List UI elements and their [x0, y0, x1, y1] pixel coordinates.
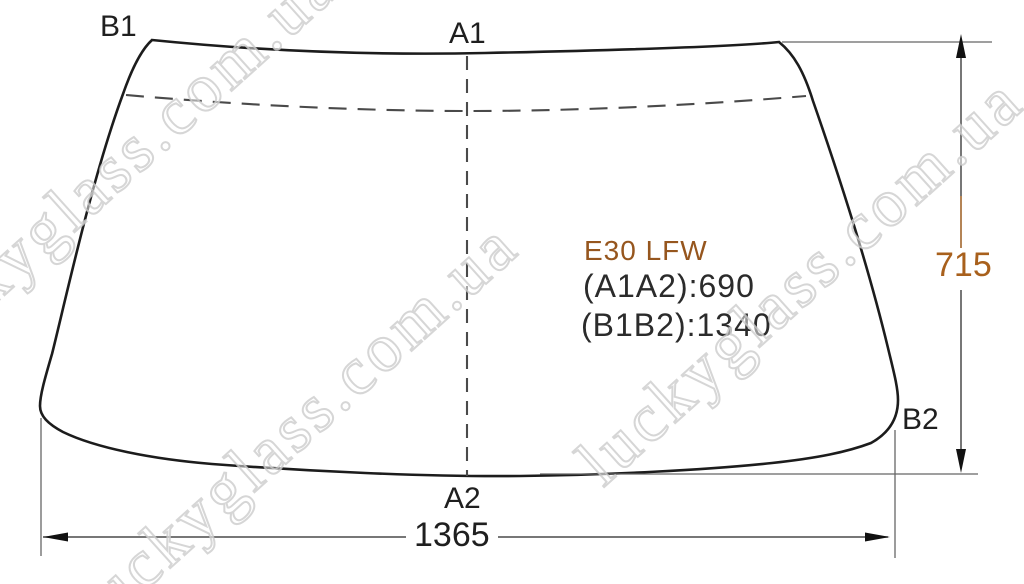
- dimension-height-value: 715: [932, 248, 995, 284]
- point-label-a1: A1: [449, 18, 486, 50]
- point-label-b1: B1: [100, 11, 137, 43]
- diagram-canvas: [0, 0, 1024, 584]
- point-label-b2: B2: [902, 404, 939, 436]
- width-dim-arrow-right: [865, 533, 890, 542]
- height-dim-arrow-up: [956, 34, 966, 58]
- dimension-width-value: 1365: [406, 518, 498, 554]
- spec-a1a2: (A1A2):690: [583, 270, 755, 304]
- windshield-diagram: B1 A1 B2 A2 E30 LFW (A1A2):690 (B1B2):13…: [0, 0, 1024, 584]
- glass-outline-path: [40, 40, 898, 476]
- spec-b1b2: (B1B2):1340: [581, 309, 772, 343]
- point-label-a2: A2: [444, 483, 481, 515]
- height-dim-arrow-down: [956, 449, 966, 473]
- product-code: E30 LFW: [584, 236, 708, 265]
- width-dim-arrow-left: [43, 533, 68, 542]
